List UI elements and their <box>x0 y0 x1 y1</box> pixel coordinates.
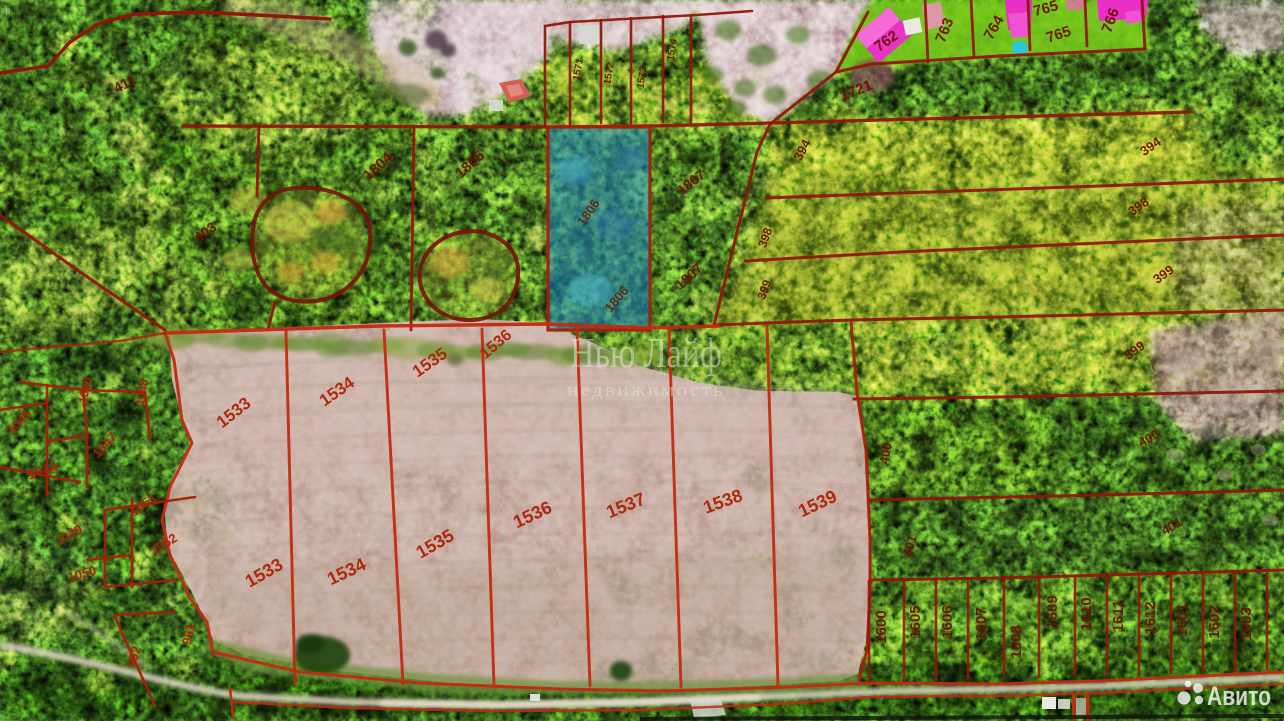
svg-text:1601: 1601 <box>1174 603 1191 636</box>
svg-text:1600: 1600 <box>873 610 890 643</box>
svg-text:1607: 1607 <box>973 607 990 640</box>
svg-text:1602: 1602 <box>1206 605 1223 638</box>
svg-text:Нью Лайф: Нью Лайф <box>570 331 722 377</box>
svg-text:1603: 1603 <box>1238 607 1255 640</box>
svg-text:ф: ф <box>2 2 10 17</box>
svg-text:1608: 1608 <box>1008 625 1025 658</box>
svg-text:1609: 1609 <box>1044 595 1061 628</box>
svg-text:1610: 1610 <box>1078 597 1095 630</box>
svg-text:1611: 1611 <box>1110 600 1127 633</box>
svg-text:Авито: Авито <box>1207 681 1271 711</box>
svg-text:недвижимость: недвижимость <box>567 380 725 401</box>
svg-text:1612: 1612 <box>1142 601 1159 634</box>
svg-text:1606: 1606 <box>939 605 956 638</box>
svg-text:1605: 1605 <box>907 605 924 638</box>
